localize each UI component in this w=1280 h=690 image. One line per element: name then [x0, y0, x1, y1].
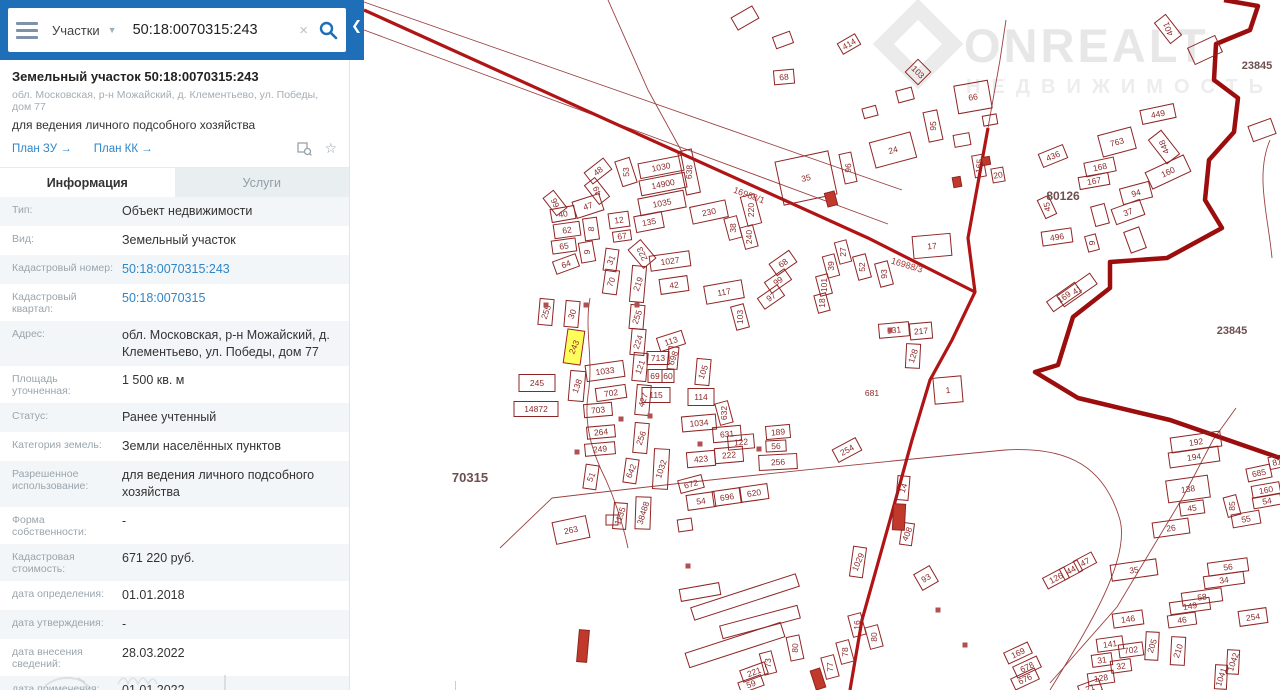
building-dot — [698, 442, 703, 447]
parcel-12[interactable]: 12 — [608, 211, 630, 229]
svg-text:496: 496 — [1049, 231, 1065, 243]
svg-text:189: 189 — [770, 426, 785, 437]
parcel-642[interactable]: 642 — [623, 458, 640, 484]
svg-text:256: 256 — [771, 457, 786, 468]
svg-text:47: 47 — [582, 200, 594, 213]
parcel-189[interactable]: 189 — [765, 424, 790, 439]
parcel-105[interactable]: 105 — [695, 358, 711, 385]
parcel-56[interactable]: 56 — [766, 440, 787, 452]
parcel-37[interactable]: 37 — [1111, 199, 1145, 224]
app-window: Участки ▼ 50:18:0070315:243 × ❮ Земельны… — [0, 0, 1280, 690]
info-row-label: Кадастровый квартал: — [0, 290, 122, 315]
parcel-1032[interactable]: 1032 — [652, 449, 669, 490]
svg-text:1030: 1030 — [651, 160, 672, 173]
building — [810, 668, 826, 690]
compare-plan-icon[interactable] — [297, 142, 312, 156]
svg-text:58: 58 — [1197, 591, 1208, 602]
tab-bar: ИнформацияУслуги — [0, 167, 349, 197]
svg-text:54: 54 — [1261, 495, 1272, 507]
parcel-30[interactable]: 30 — [564, 300, 580, 327]
parcel-93[interactable]: 93 — [914, 566, 939, 591]
svg-text:30: 30 — [566, 308, 579, 321]
svg-text:702: 702 — [1123, 644, 1139, 656]
svg-text:77: 77 — [825, 662, 835, 672]
parcel-9[interactable]: 9 — [578, 241, 595, 263]
parcel-14872[interactable]: 14872 — [514, 402, 558, 417]
info-row: Кадастровый квартал:50:18:0070315 — [0, 284, 349, 321]
info-row-label: Тип: — [0, 203, 122, 220]
svg-text:14: 14 — [897, 482, 910, 495]
svg-text:17: 17 — [927, 241, 938, 252]
parcel-423[interactable]: 423 — [686, 450, 715, 467]
parcel-54[interactable]: 54 — [1252, 493, 1280, 509]
parcel-138[interactable]: 138 — [1166, 475, 1211, 503]
svg-text:160: 160 — [1159, 164, 1176, 179]
parcel-696[interactable]: 696 — [712, 488, 742, 507]
parcel-68[interactable]: 68 — [769, 250, 797, 275]
svg-text:12: 12 — [614, 214, 625, 225]
svg-text:114: 114 — [694, 392, 708, 402]
parcel-167[interactable]: 167 — [1078, 172, 1110, 189]
parcel-223[interactable]: 223 — [628, 240, 656, 269]
info-row: Площадь уточненная:1 500 кв. м — [0, 366, 349, 403]
search-input[interactable]: 50:18:0070315:243 — [133, 22, 300, 38]
parcel-9[interactable]: 9 — [1085, 234, 1100, 252]
quartal-label-80126: 80126 — [1046, 189, 1080, 203]
svg-text:427: 427 — [636, 391, 650, 408]
tab-services[interactable]: Услуги — [175, 168, 350, 197]
svg-text:638: 638 — [684, 164, 695, 179]
parcel-620[interactable]: 620 — [739, 484, 769, 503]
svg-text:9: 9 — [1087, 240, 1097, 245]
search-category-label: Участки — [52, 23, 100, 38]
parcel — [1248, 118, 1276, 141]
info-row-value: 1 500 кв. м — [122, 372, 349, 397]
svg-text:65: 65 — [559, 240, 570, 251]
info-row-label: Кадастровая стоимость: — [0, 550, 122, 575]
parcel-51[interactable]: 51 — [583, 464, 599, 490]
building-dot — [888, 328, 893, 333]
parcel-219[interactable]: 219 — [629, 265, 646, 302]
parcel-94[interactable]: 94 — [1119, 181, 1152, 204]
parcel-217[interactable]: 217 — [909, 322, 932, 340]
parcel-141[interactable]: 141 — [1096, 636, 1124, 652]
plan-zu-link[interactable]: План ЗУ → — [12, 143, 72, 155]
parcel-96[interactable]: 96 — [839, 152, 857, 184]
cadastral-map[interactable]: 4853103014900103563813512674749664062865… — [352, 0, 1280, 690]
favorite-star-icon[interactable]: ☆ — [324, 140, 337, 157]
search-icon[interactable] — [318, 20, 338, 40]
svg-text:254: 254 — [838, 442, 855, 458]
svg-text:55: 55 — [1240, 513, 1251, 525]
svg-text:70: 70 — [605, 275, 618, 288]
svg-text:205: 205 — [1145, 637, 1159, 654]
svg-text:1032: 1032 — [653, 458, 668, 479]
parcel — [677, 518, 693, 532]
parcel-66[interactable]: 66 — [954, 80, 992, 113]
svg-text:35: 35 — [800, 172, 812, 184]
parcel-121[interactable]: 121 — [632, 352, 648, 381]
parcel-42[interactable]: 42 — [659, 276, 689, 295]
info-row-label: Вид: — [0, 232, 122, 249]
parcel-31[interactable]: 31 — [1091, 653, 1112, 668]
svg-text:69: 69 — [650, 371, 660, 381]
parcel-24[interactable]: 24 — [869, 132, 916, 168]
parcel-17[interactable]: 17 — [912, 233, 952, 258]
svg-text:105: 105 — [696, 363, 710, 380]
svg-text:702: 702 — [603, 387, 619, 399]
parcel-69[interactable]: 69 — [648, 370, 662, 383]
svg-text:32: 32 — [1116, 660, 1127, 671]
info-row-value: 01.01.2018 — [122, 587, 349, 604]
info-row-label: Кадастровый номер: — [0, 261, 122, 278]
building — [577, 630, 590, 663]
svg-text:146: 146 — [1120, 613, 1136, 625]
info-row: Кадастровая стоимость:671 220 руб. — [0, 544, 349, 581]
parcel-47[interactable]: 47 — [572, 194, 604, 219]
parcel-60[interactable]: 60 — [662, 370, 674, 383]
svg-text:1034: 1034 — [689, 417, 709, 429]
svg-text:20: 20 — [992, 169, 1003, 181]
svg-text:95: 95 — [928, 121, 938, 131]
info-row-value: Объект недвижимости — [122, 203, 349, 220]
parcel-685[interactable]: 685 — [1246, 464, 1272, 482]
parcel-35[interactable]: 35 — [1110, 559, 1158, 581]
parcel-263[interactable]: 263 — [552, 516, 590, 545]
svg-text:255: 255 — [630, 308, 644, 325]
svg-text:93: 93 — [919, 571, 932, 585]
footer-graphic — [0, 650, 350, 690]
svg-text:115: 115 — [649, 390, 663, 400]
svg-text:26: 26 — [1166, 522, 1177, 533]
parcel-264[interactable]: 264 — [587, 425, 616, 439]
parcel-114[interactable]: 114 — [688, 389, 714, 406]
svg-text:676: 676 — [1016, 671, 1033, 686]
parcel — [896, 87, 915, 103]
parcel-95[interactable]: 95 — [923, 110, 943, 142]
building-dot — [635, 303, 640, 308]
svg-text:217: 217 — [913, 325, 928, 336]
svg-text:138: 138 — [570, 377, 584, 394]
svg-text:40: 40 — [557, 208, 568, 220]
building-dot — [544, 303, 549, 308]
parcel-99[interactable]: 99 — [764, 269, 791, 293]
svg-text:1135: 1135 — [612, 505, 627, 526]
parcel-52[interactable]: 52 — [853, 254, 872, 281]
info-row-label: Статус: — [0, 409, 122, 426]
svg-text:264: 264 — [593, 426, 608, 437]
parcel-1[interactable]: 1 — [933, 376, 963, 404]
svg-text:210: 210 — [1171, 642, 1185, 659]
parcel — [720, 605, 801, 638]
parcel-414[interactable]: 414 — [837, 34, 860, 54]
collapse-panel-icon[interactable]: ❮ — [351, 18, 362, 34]
svg-text:249: 249 — [592, 443, 607, 454]
parcel-249[interactable]: 249 — [585, 442, 616, 457]
svg-text:38: 38 — [728, 223, 738, 233]
parcel-702[interactable]: 702 — [595, 384, 627, 401]
parcel-31[interactable]: 31 — [603, 248, 619, 272]
svg-text:101: 101 — [819, 278, 829, 292]
svg-text:135: 135 — [641, 216, 657, 229]
svg-text:103: 103 — [735, 310, 745, 324]
info-row: дата определения:01.01.2018 — [0, 581, 349, 610]
parcel-26[interactable]: 26 — [1152, 518, 1190, 538]
parcel-681[interactable]: 681 — [865, 388, 879, 398]
parcel-401[interactable]: 401 — [1154, 14, 1181, 43]
svg-text:8: 8 — [586, 226, 597, 232]
info-row: Форма собственности:- — [0, 507, 349, 544]
svg-text:126: 126 — [1047, 570, 1064, 586]
svg-text:31: 31 — [1097, 654, 1108, 665]
parcel-205[interactable]: 205 — [1145, 632, 1160, 661]
parcel-27[interactable]: 27 — [834, 240, 851, 264]
parcel-45[interactable]: 45 — [1179, 500, 1205, 516]
street-lines — [364, 0, 1272, 690]
svg-text:52: 52 — [857, 262, 867, 272]
parcel-8[interactable]: 8 — [583, 217, 600, 241]
svg-text:713: 713 — [651, 353, 665, 363]
svg-text:39: 39 — [826, 261, 836, 271]
svg-text:94: 94 — [1130, 187, 1142, 199]
parcel-194[interactable]: 194 — [1168, 446, 1220, 468]
parcel-113[interactable]: 113 — [656, 330, 685, 351]
svg-text:68: 68 — [779, 72, 790, 83]
selected-parcel-243[interactable]: 243 — [563, 329, 585, 365]
svg-text:96: 96 — [843, 163, 853, 173]
parcel-1029[interactable]: 1029 — [849, 546, 868, 578]
parcel-64[interactable]: 64 — [553, 254, 580, 274]
parcel-254[interactable]: 254 — [1238, 608, 1268, 627]
parcel — [1124, 227, 1147, 253]
info-row-value-link[interactable]: 50:18:0070315 — [122, 290, 349, 315]
result-address: обл. Московская, р-н Можайский, д. Клеме… — [12, 89, 337, 113]
svg-text:254: 254 — [1245, 611, 1261, 623]
info-row-value: обл. Московская, р-н Можайский, д. Клеме… — [122, 327, 349, 361]
search-category-dropdown[interactable]: Участки ▼ — [52, 23, 117, 38]
parcel-240[interactable]: 240 — [740, 225, 759, 250]
svg-text:256: 256 — [634, 429, 648, 446]
parcel-254[interactable]: 254 — [832, 438, 862, 463]
svg-text:620: 620 — [746, 487, 762, 499]
building-dot — [757, 447, 762, 452]
parcel-230[interactable]: 230 — [690, 200, 729, 224]
parcel-80[interactable]: 80 — [786, 635, 804, 661]
svg-text:18: 18 — [817, 298, 827, 308]
parcel-67[interactable]: 67 — [612, 230, 631, 242]
svg-text:263: 263 — [563, 524, 579, 537]
info-row-label: Категория земель: — [0, 438, 122, 455]
svg-text:219: 219 — [631, 275, 645, 292]
parcel-131[interactable]: 131 — [878, 322, 909, 339]
parcel-128[interactable]: 128 — [905, 344, 920, 369]
svg-text:138: 138 — [1180, 483, 1196, 495]
parcel-255[interactable]: 255 — [629, 304, 645, 329]
parcel-245[interactable]: 245 — [519, 375, 555, 392]
info-row-value: Земельный участок — [122, 232, 349, 249]
parcel-80[interactable]: 80 — [865, 625, 883, 650]
svg-text:37: 37 — [1122, 206, 1135, 219]
parcel-436[interactable]: 436 — [1038, 145, 1067, 168]
parcel-496[interactable]: 496 — [1041, 228, 1073, 246]
parcel-160[interactable]: 160 — [1145, 155, 1191, 189]
search-bar: Участки ▼ 50:18:0070315:243 × ❮ — [0, 0, 364, 60]
svg-text:1033: 1033 — [595, 365, 615, 378]
parcel-34[interactable]: 34 — [1203, 571, 1244, 588]
info-row-value: - — [122, 513, 349, 538]
building-dot — [584, 303, 589, 308]
quartal-label-23845: 23845 — [1217, 325, 1248, 337]
parcel — [731, 6, 759, 30]
parcel-138[interactable]: 138 — [568, 370, 586, 401]
svg-text:31: 31 — [605, 253, 618, 266]
parcel-146[interactable]: 146 — [1112, 610, 1144, 628]
svg-text:14900: 14900 — [650, 177, 675, 191]
parcel-103[interactable]: 103 — [730, 304, 749, 331]
tab-information[interactable]: Информация — [0, 168, 175, 197]
svg-text:1: 1 — [945, 385, 951, 395]
parcel-449[interactable]: 449 — [1140, 104, 1176, 125]
svg-text:685: 685 — [1251, 467, 1267, 480]
svg-text:632: 632 — [719, 406, 729, 420]
parcel-103[interactable]: 103 — [905, 59, 930, 84]
parcel-1030[interactable]: 1030 — [638, 155, 684, 178]
building-dot — [619, 417, 624, 422]
svg-text:449: 449 — [1150, 108, 1166, 121]
parcel-53[interactable]: 53 — [615, 157, 637, 186]
building-dot — [686, 564, 691, 569]
parcel-48[interactable]: 48 — [584, 158, 612, 184]
info-row: Вид:Земельный участок — [0, 226, 349, 255]
parcel-78[interactable]: 78 — [836, 640, 854, 665]
svg-text:681: 681 — [865, 388, 879, 398]
svg-text:67: 67 — [617, 230, 628, 241]
quartal-label-70315: 70315 — [452, 470, 488, 485]
svg-text:1027: 1027 — [660, 255, 680, 268]
result-usage: для ведения личного подсобного хозяйства — [12, 118, 337, 132]
svg-text:240: 240 — [744, 230, 754, 244]
parcel-62[interactable]: 62 — [553, 221, 581, 238]
svg-text:113: 113 — [663, 334, 679, 348]
svg-text:401: 401 — [1161, 20, 1176, 37]
quartal-label-23845: 23845 — [1242, 60, 1273, 72]
parcel — [772, 31, 793, 48]
svg-text:423: 423 — [693, 453, 708, 464]
info-row-label: Адрес: — [0, 327, 122, 361]
parcel-702[interactable]: 702 — [1118, 642, 1144, 658]
roads — [364, 10, 988, 690]
parcel-68[interactable]: 68 — [773, 69, 794, 85]
parcel-210[interactable]: 210 — [1170, 637, 1185, 666]
search-box: Участки ▼ 50:18:0070315:243 × — [8, 8, 346, 52]
parcel-20[interactable]: 20 — [991, 167, 1005, 183]
svg-text:34: 34 — [1219, 574, 1230, 585]
building-dot — [575, 450, 580, 455]
svg-text:56: 56 — [771, 441, 781, 451]
parcel-70[interactable]: 70 — [602, 269, 619, 295]
info-row-value: - — [122, 616, 349, 633]
parcel-1027[interactable]: 1027 — [649, 251, 691, 271]
clear-search-icon[interactable]: × — [299, 22, 308, 39]
parcel-1035[interactable]: 1035 — [638, 190, 686, 215]
info-row-value: Земли населённых пунктов — [122, 438, 349, 455]
search-result[interactable]: Земельный участок 50:18:0070315:243 обл.… — [0, 60, 349, 167]
info-row-value-link[interactable]: 50:18:0070315:243 — [122, 261, 349, 278]
parcel-224[interactable]: 224 — [630, 328, 646, 355]
svg-text:169: 169 — [1009, 645, 1026, 660]
svg-text:51: 51 — [585, 470, 598, 483]
svg-text:414: 414 — [840, 36, 858, 52]
svg-text:56: 56 — [1223, 561, 1234, 572]
svg-text:230: 230 — [701, 206, 717, 219]
parcel-65[interactable]: 65 — [551, 238, 577, 254]
parcel-55[interactable]: 55 — [1231, 510, 1261, 528]
svg-text:9: 9 — [582, 249, 592, 255]
parcel-256[interactable]: 256 — [759, 454, 798, 471]
map-area[interactable]: ONREALT НЕДВИЖИМОСТЬ 48531 — [352, 0, 1280, 690]
svg-text:85: 85 — [1227, 501, 1237, 511]
info-row: Статус:Ранее учтенный — [0, 403, 349, 432]
building — [892, 504, 905, 531]
info-row-value: для ведения личного подсобного хозяйства — [122, 467, 349, 501]
parcel-54[interactable]: 54 — [686, 492, 716, 511]
svg-text:149: 149 — [1182, 600, 1198, 612]
info-row-label: дата утверждения: — [0, 616, 122, 633]
parcel-1042[interactable]: 1042 — [1225, 650, 1241, 675]
parcel-38488[interactable]: 38488 — [635, 497, 652, 530]
svg-text:78: 78 — [840, 647, 850, 657]
parcel-703[interactable]: 703 — [583, 402, 612, 417]
building — [981, 156, 990, 165]
parcel-1034[interactable]: 1034 — [681, 414, 716, 432]
chevron-down-icon: ▼ — [108, 25, 117, 35]
svg-text:245: 245 — [530, 378, 544, 388]
info-row-label: дата определения: — [0, 587, 122, 604]
svg-text:46: 46 — [1177, 614, 1188, 625]
svg-text:220: 220 — [746, 203, 756, 217]
svg-text:27: 27 — [838, 247, 848, 257]
building-dot — [648, 414, 653, 419]
parcel-672[interactable]: 672 — [678, 475, 705, 494]
parcel-1033[interactable]: 1033 — [585, 360, 625, 381]
svg-text:192: 192 — [1188, 436, 1204, 448]
svg-text:93: 93 — [879, 269, 889, 279]
svg-text:128: 128 — [1093, 672, 1109, 684]
parcel-14[interactable]: 14 — [896, 476, 910, 501]
parcel-256[interactable]: 256 — [633, 422, 650, 453]
menu-icon[interactable] — [16, 22, 38, 39]
parcel-117[interactable]: 117 — [704, 280, 745, 304]
svg-text:42: 42 — [669, 279, 680, 290]
svg-text:24: 24 — [887, 144, 899, 156]
footer-tick — [455, 681, 456, 690]
svg-text:80: 80 — [869, 632, 879, 642]
parcel-14900[interactable]: 14900 — [639, 172, 687, 196]
info-row-label: Разрешенное использование: — [0, 467, 122, 501]
parcel-97[interactable]: 97 — [757, 285, 784, 309]
svg-text:194: 194 — [1186, 451, 1202, 463]
info-row: Тип:Объект недвижимости — [0, 197, 349, 226]
building — [824, 191, 837, 207]
svg-text:117: 117 — [716, 286, 731, 298]
svg-text:35: 35 — [1129, 564, 1140, 575]
parcel-77[interactable]: 77 — [821, 655, 839, 680]
plan-kk-link[interactable]: План КК → — [94, 143, 153, 155]
parcel-632[interactable]: 632 — [715, 401, 734, 426]
parcel-763[interactable]: 763 — [1098, 127, 1137, 157]
info-panel: Земельный участок 50:18:0070315:243 обл.… — [0, 60, 350, 690]
parcel-47[interactable]: 47 — [1073, 552, 1096, 572]
